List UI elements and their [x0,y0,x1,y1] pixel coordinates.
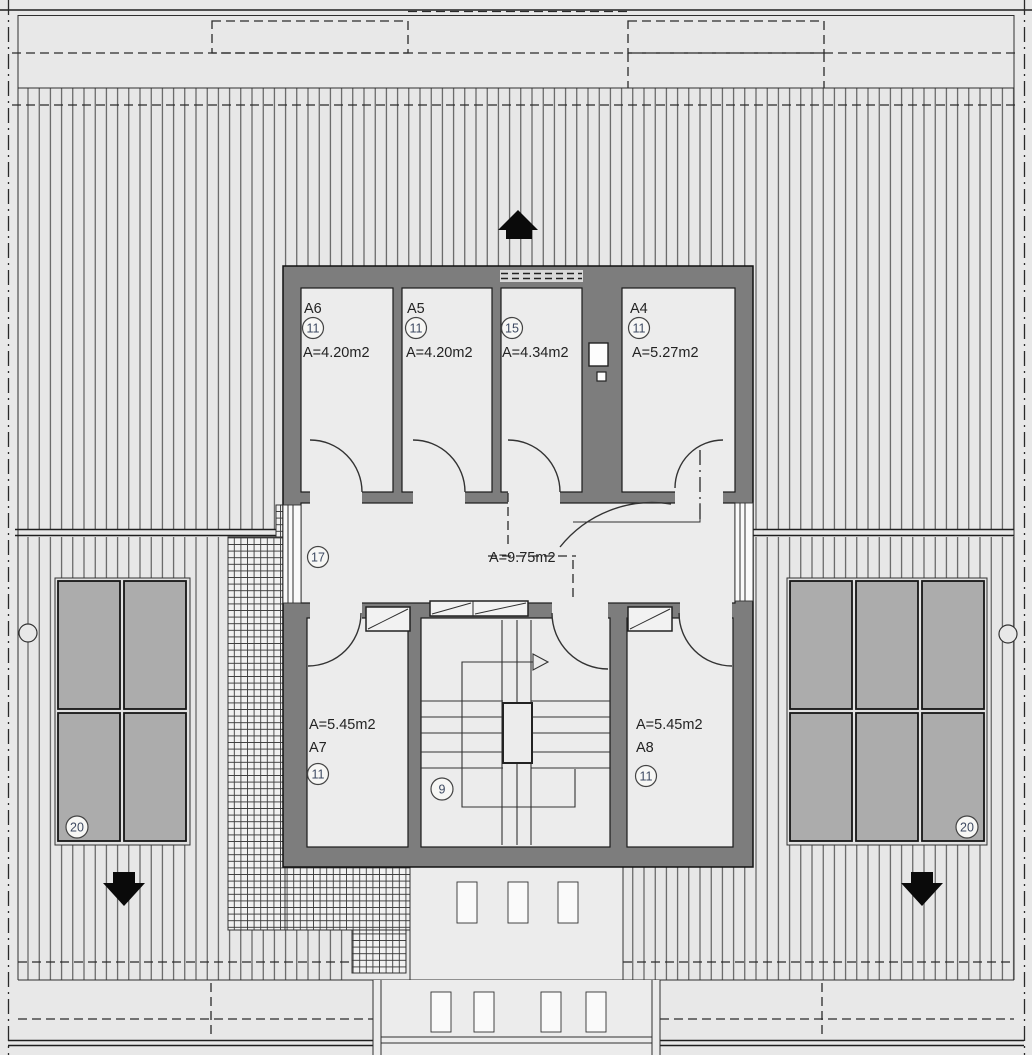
room-a7-tag: 11 [312,768,325,782]
roof-window-panel [790,713,852,841]
chimney-flue-2 [508,882,528,923]
roof-window-panel [790,581,852,709]
porch-flue-2 [474,992,494,1032]
floor-plan-drawing: A6 11 A=4.20m2 A5 11 A=4.20m2 15 A=4.34m… [0,0,1032,1055]
hall-tag: 17 [311,551,325,565]
terrace-tail [352,930,406,973]
gutter-marker-right [999,625,1017,643]
porch-flue-3 [541,992,561,1032]
gutter-marker-left [19,624,37,642]
terrace-strip [228,537,285,930]
roof-hatch-left-upper [18,266,283,530]
roof-window-left-tag: 20 [70,821,84,835]
door-opening-a4 [675,491,723,504]
roof-window-panel [58,581,120,709]
door-opening-a7 [310,602,362,619]
chimney-flue-3 [558,882,578,923]
room-a8-tag: 11 [640,770,653,784]
roof-window-panel [922,581,984,709]
roof-hatch-below-left [283,930,352,980]
room-a6-tag: 11 [307,322,320,336]
porch-flue-4 [586,992,606,1032]
roof-hatch-right-upper [753,266,1014,530]
roof-window-panel [856,713,918,841]
stair-tag: 9 [439,783,446,797]
porch-flue-1 [431,992,451,1032]
room-a7-name: A7 [309,740,327,756]
shaft-duct-large [589,343,608,366]
roof-window-right-tag: 20 [960,821,974,835]
closet-hall [430,601,528,616]
window-east [735,503,753,601]
roof-windows-right [787,578,987,845]
roof-hatch-below-right [623,867,753,980]
room-15-tag: 15 [505,322,519,336]
wardrobe-a8 [628,607,672,631]
room-a8-name: A8 [636,740,654,756]
door-opening-a8 [680,602,732,619]
hall-area: A=9.75m2 [489,550,556,566]
stair-landing [503,703,532,763]
chimney-flue-1 [457,882,477,923]
door-opening-stair [552,602,608,619]
roof-windows-left [55,578,190,845]
room-a6-name: A6 [304,301,322,317]
shaft-duct-small [597,372,606,381]
window-west [283,505,301,603]
room-a4-name: A4 [630,301,648,317]
door-opening-a5 [413,491,465,504]
roof-hatch-top [18,88,1014,266]
floor-plan: A6 11 A=4.20m2 A5 11 A=4.20m2 15 A=4.34m… [0,0,1032,1055]
room-15-area: A=4.34m2 [502,345,569,361]
roof-window-panel [124,713,186,841]
room-a5-area: A=4.20m2 [406,345,473,361]
room-a8-area: A=5.45m2 [636,717,703,733]
room-a4-area: A=5.27m2 [632,345,699,361]
top-wall-vent-strip [500,270,583,282]
roof-window-panel [124,581,186,709]
porch-area [373,980,660,1055]
room-a4-tag: 11 [633,322,646,336]
door-opening-a6 [310,491,362,504]
terrace-block [285,867,410,930]
room-a5-name: A5 [407,301,425,317]
wardrobe-a7 [366,607,410,631]
room-a5-tag: 11 [410,322,423,336]
room-a6-area: A=4.20m2 [303,345,370,361]
roof-window-panel [856,581,918,709]
door-opening-15 [508,491,560,504]
room-a7-area: A=5.45m2 [309,717,376,733]
